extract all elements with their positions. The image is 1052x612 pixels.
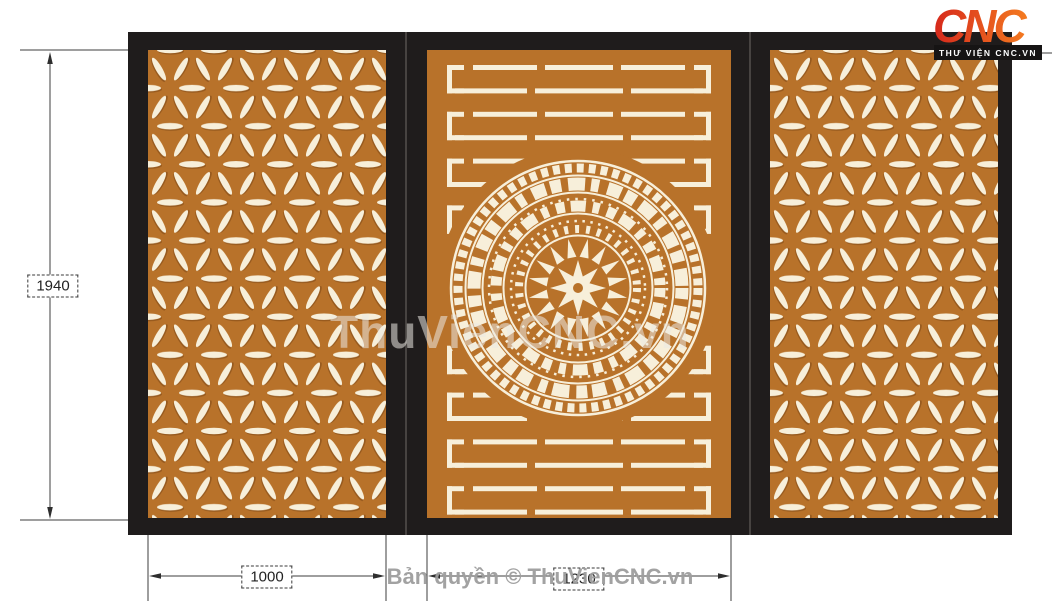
slat-and-drum-pattern bbox=[427, 50, 731, 518]
slat-bar bbox=[694, 486, 711, 491]
slat-bar bbox=[473, 439, 537, 444]
slat-bar bbox=[447, 486, 464, 491]
slat-bar bbox=[545, 439, 613, 444]
slat-bar bbox=[621, 439, 685, 444]
slat-bar bbox=[447, 439, 464, 444]
slat-bar bbox=[473, 112, 537, 117]
slat-bar bbox=[694, 65, 711, 70]
slat-bar bbox=[535, 135, 623, 140]
slat-bar bbox=[455, 463, 527, 468]
slat-bar bbox=[455, 88, 527, 93]
slat-bar bbox=[621, 112, 685, 117]
logo-cnc-text: CNC bbox=[933, 0, 1027, 52]
slat-bar bbox=[545, 65, 613, 70]
gate-leaf-seam-right bbox=[749, 32, 751, 535]
height-dimension-label: 1940 bbox=[27, 275, 78, 298]
drum-center-hole bbox=[573, 283, 583, 293]
center-drum-panel bbox=[427, 50, 731, 518]
slat-bar bbox=[694, 112, 711, 117]
right-star-panel bbox=[770, 50, 998, 518]
slat-bar bbox=[455, 510, 527, 515]
gate-leaf-seam-left bbox=[405, 32, 407, 535]
slat-bar bbox=[631, 510, 703, 515]
thuviencnc-logo: CNC THƯ VIỆN CNC.VN bbox=[930, 0, 1052, 64]
slat-bar bbox=[447, 65, 464, 70]
left-star-panel bbox=[148, 50, 386, 518]
slat-bar bbox=[535, 510, 623, 515]
slat-bar bbox=[447, 112, 464, 117]
slat-bar bbox=[473, 65, 537, 70]
logo-tagline-text: THƯ VIỆN CNC.VN bbox=[939, 47, 1037, 58]
star-pattern-right bbox=[770, 50, 998, 518]
slat-bar bbox=[447, 393, 464, 398]
slat-bar bbox=[631, 463, 703, 468]
slat-bar bbox=[631, 416, 703, 421]
gate-frame bbox=[128, 32, 1012, 535]
slat-bar bbox=[545, 486, 613, 491]
watermark-text: ThuVienCNC.vn bbox=[330, 305, 690, 359]
slat-bar bbox=[694, 159, 711, 164]
slat-bar bbox=[694, 439, 711, 444]
slat-bar bbox=[631, 88, 703, 93]
slat-bar bbox=[621, 486, 685, 491]
copyright-text: Bản quyền © ThuVienCNC.vn bbox=[260, 564, 820, 590]
slat-bar bbox=[535, 88, 623, 93]
logo-graphic: CNC THƯ VIỆN CNC.VN bbox=[930, 0, 1052, 64]
star-pattern-left bbox=[148, 50, 386, 518]
slat-bar bbox=[694, 205, 711, 210]
slat-bar bbox=[535, 463, 623, 468]
slat-bar bbox=[447, 205, 464, 210]
slat-bar bbox=[694, 393, 711, 398]
slat-bar bbox=[621, 65, 685, 70]
slat-bar bbox=[545, 112, 613, 117]
slat-bar bbox=[447, 159, 464, 164]
slat-bar bbox=[455, 135, 527, 140]
slat-bar bbox=[631, 135, 703, 140]
slat-bar bbox=[473, 486, 537, 491]
cad-drawing-canvas: 1940 1000 1230 ThuVienCNC.vn Bản quyền ©… bbox=[0, 0, 1052, 612]
slat-bar bbox=[455, 416, 527, 421]
